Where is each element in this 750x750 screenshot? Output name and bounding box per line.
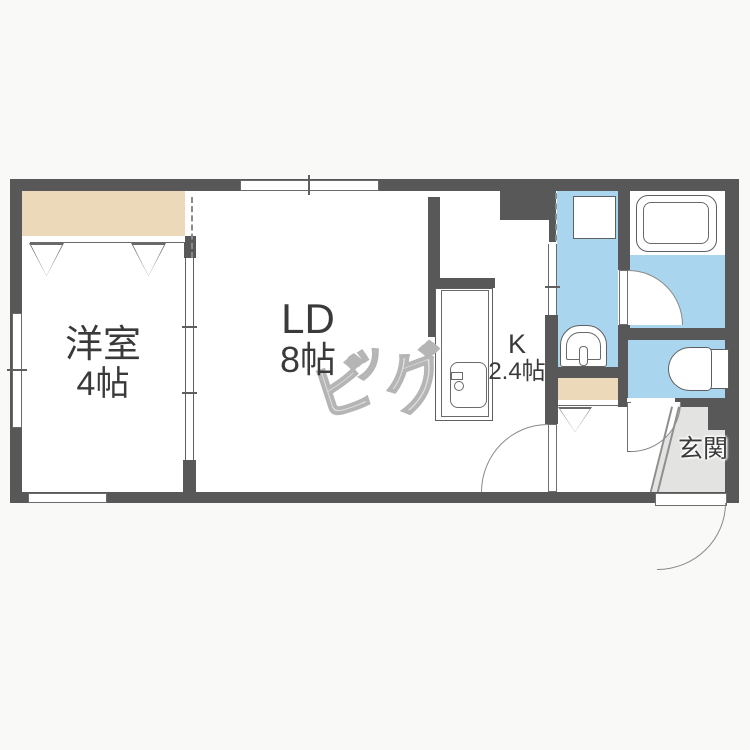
toilet-bowl-icon bbox=[668, 347, 712, 391]
wash-basin-faucet-icon bbox=[579, 346, 588, 366]
wall-block-top bbox=[500, 191, 549, 220]
wall-bottom bbox=[10, 492, 739, 503]
ld-room-name: LD bbox=[250, 296, 366, 341]
kitchen-room-size: 2.4帖 bbox=[477, 359, 557, 385]
bath-door-leaf bbox=[619, 270, 628, 325]
kitchen-room-name: K bbox=[477, 330, 557, 359]
room-label-ld: LD 8帖 bbox=[250, 296, 366, 380]
bath-toilet-wall bbox=[618, 328, 725, 340]
floorplan: 洋室 4帖 LD 8帖 K 2.4帖 玄関 ビ ッ グ bbox=[0, 0, 750, 750]
window-top-tick bbox=[308, 175, 310, 195]
fridge-space-dashed-line bbox=[555, 193, 557, 251]
room-label-entrance: 玄関 bbox=[673, 436, 733, 463]
shoe-closet-front bbox=[558, 400, 618, 406]
closet-fill bbox=[22, 190, 185, 236]
ld-room-size: 8帖 bbox=[250, 341, 366, 380]
room-label-kitchen: K 2.4帖 bbox=[477, 330, 557, 385]
partition-stub-bottom bbox=[183, 460, 196, 492]
washroom-door bbox=[548, 244, 557, 315]
western-room-name: 洋室 bbox=[45, 325, 161, 366]
western-room-size: 4帖 bbox=[45, 366, 161, 403]
window-left-tick bbox=[7, 369, 27, 371]
entrance-top-notch-wall bbox=[708, 407, 725, 430]
toilet-tank-icon bbox=[709, 349, 729, 389]
closet-front bbox=[30, 236, 185, 243]
faucet-icon bbox=[451, 372, 463, 380]
partition-dashed-line bbox=[191, 197, 193, 258]
washroom-door-tick bbox=[545, 286, 560, 288]
sliding-door-tick bbox=[182, 326, 197, 328]
sliding-door-tick bbox=[182, 392, 197, 394]
washroom-bath-wall-top bbox=[618, 191, 630, 270]
alcove-wall-bottom bbox=[428, 278, 495, 288]
washing-machine-pan-icon bbox=[573, 196, 616, 239]
partition-stub-top bbox=[184, 236, 196, 258]
sliding-door bbox=[185, 258, 194, 460]
entrance-room-name: 玄関 bbox=[678, 435, 728, 463]
bathtub-inner bbox=[643, 202, 709, 244]
entrance-door-arc bbox=[657, 503, 726, 570]
hall-door-leaf bbox=[548, 424, 557, 492]
window-bottom bbox=[28, 493, 107, 503]
shoe-closet-fill bbox=[558, 378, 618, 400]
room-label-western: 洋室 4帖 bbox=[45, 325, 161, 403]
